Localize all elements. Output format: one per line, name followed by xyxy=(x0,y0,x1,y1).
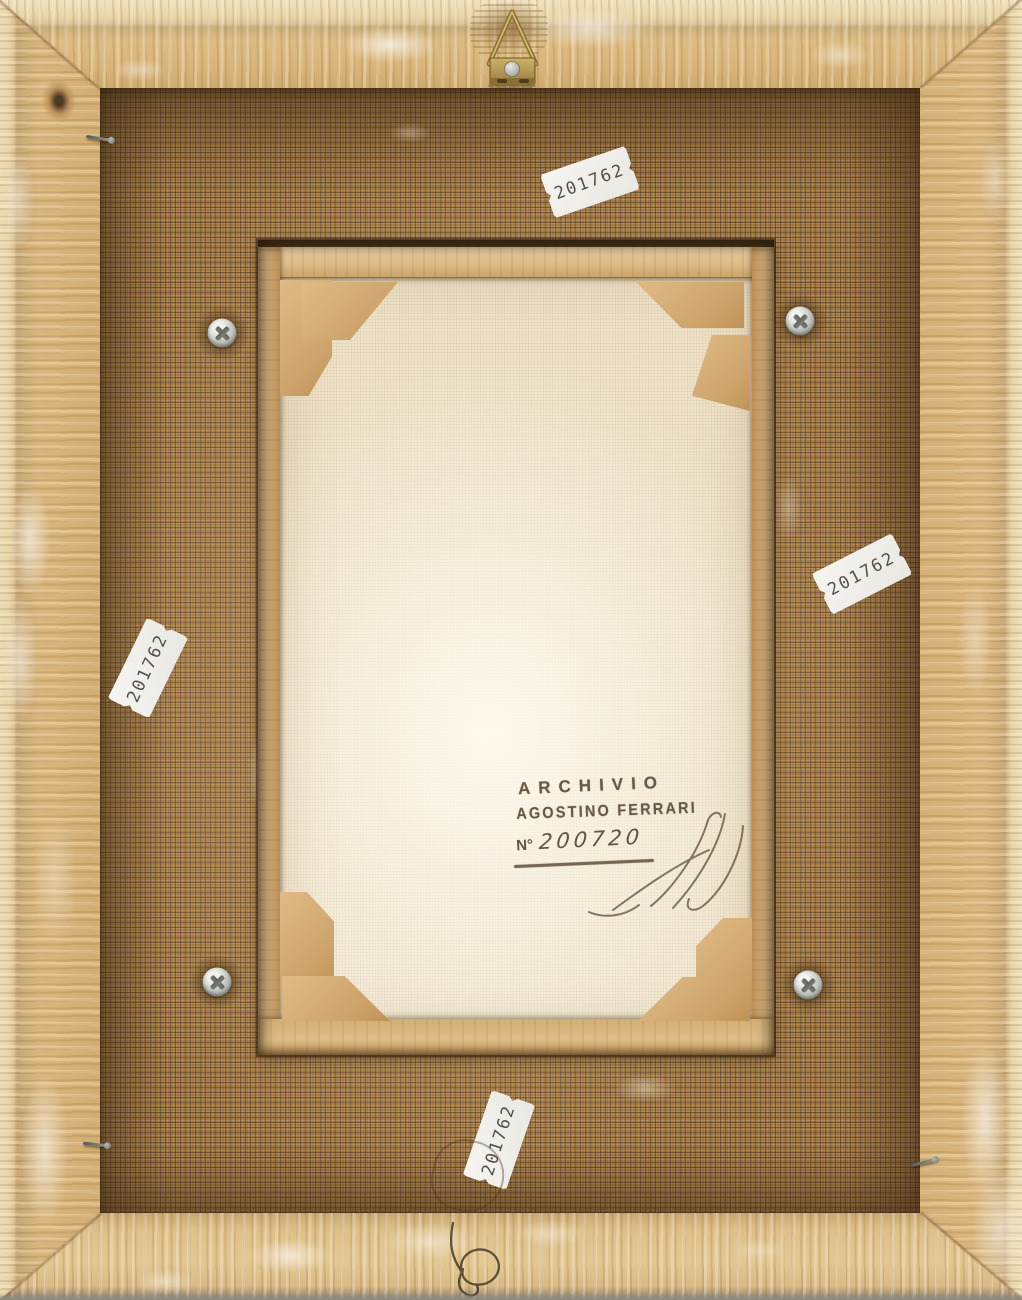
pen-scribble xyxy=(430,1215,520,1300)
screw-head xyxy=(203,968,232,997)
screw-head xyxy=(208,319,237,348)
mounting-screw xyxy=(780,957,836,1013)
mounting-screw xyxy=(772,293,828,349)
canvas-opening: ARCHIVIO AGOSTINO FERRARI N°200720 xyxy=(258,240,774,1055)
mounting-screw xyxy=(189,954,245,1010)
mounting-screw xyxy=(194,305,250,361)
archive-stamp-number-prefix: N° xyxy=(516,836,534,854)
photo-edge-shadow xyxy=(0,1293,1022,1300)
hanging-bracket xyxy=(462,6,562,90)
framed-painting-verso-photo: ARCHIVIO AGOSTINO FERRARI N°200720 xyxy=(0,0,1022,1300)
screw-head xyxy=(794,971,823,1000)
screw-head xyxy=(786,307,815,336)
stretcher-bar-bottom xyxy=(258,1019,774,1055)
stretcher-bar-top xyxy=(258,247,774,278)
canvas-back xyxy=(258,247,774,1055)
signature xyxy=(553,800,763,920)
stretcher-bar-left xyxy=(258,247,280,1021)
